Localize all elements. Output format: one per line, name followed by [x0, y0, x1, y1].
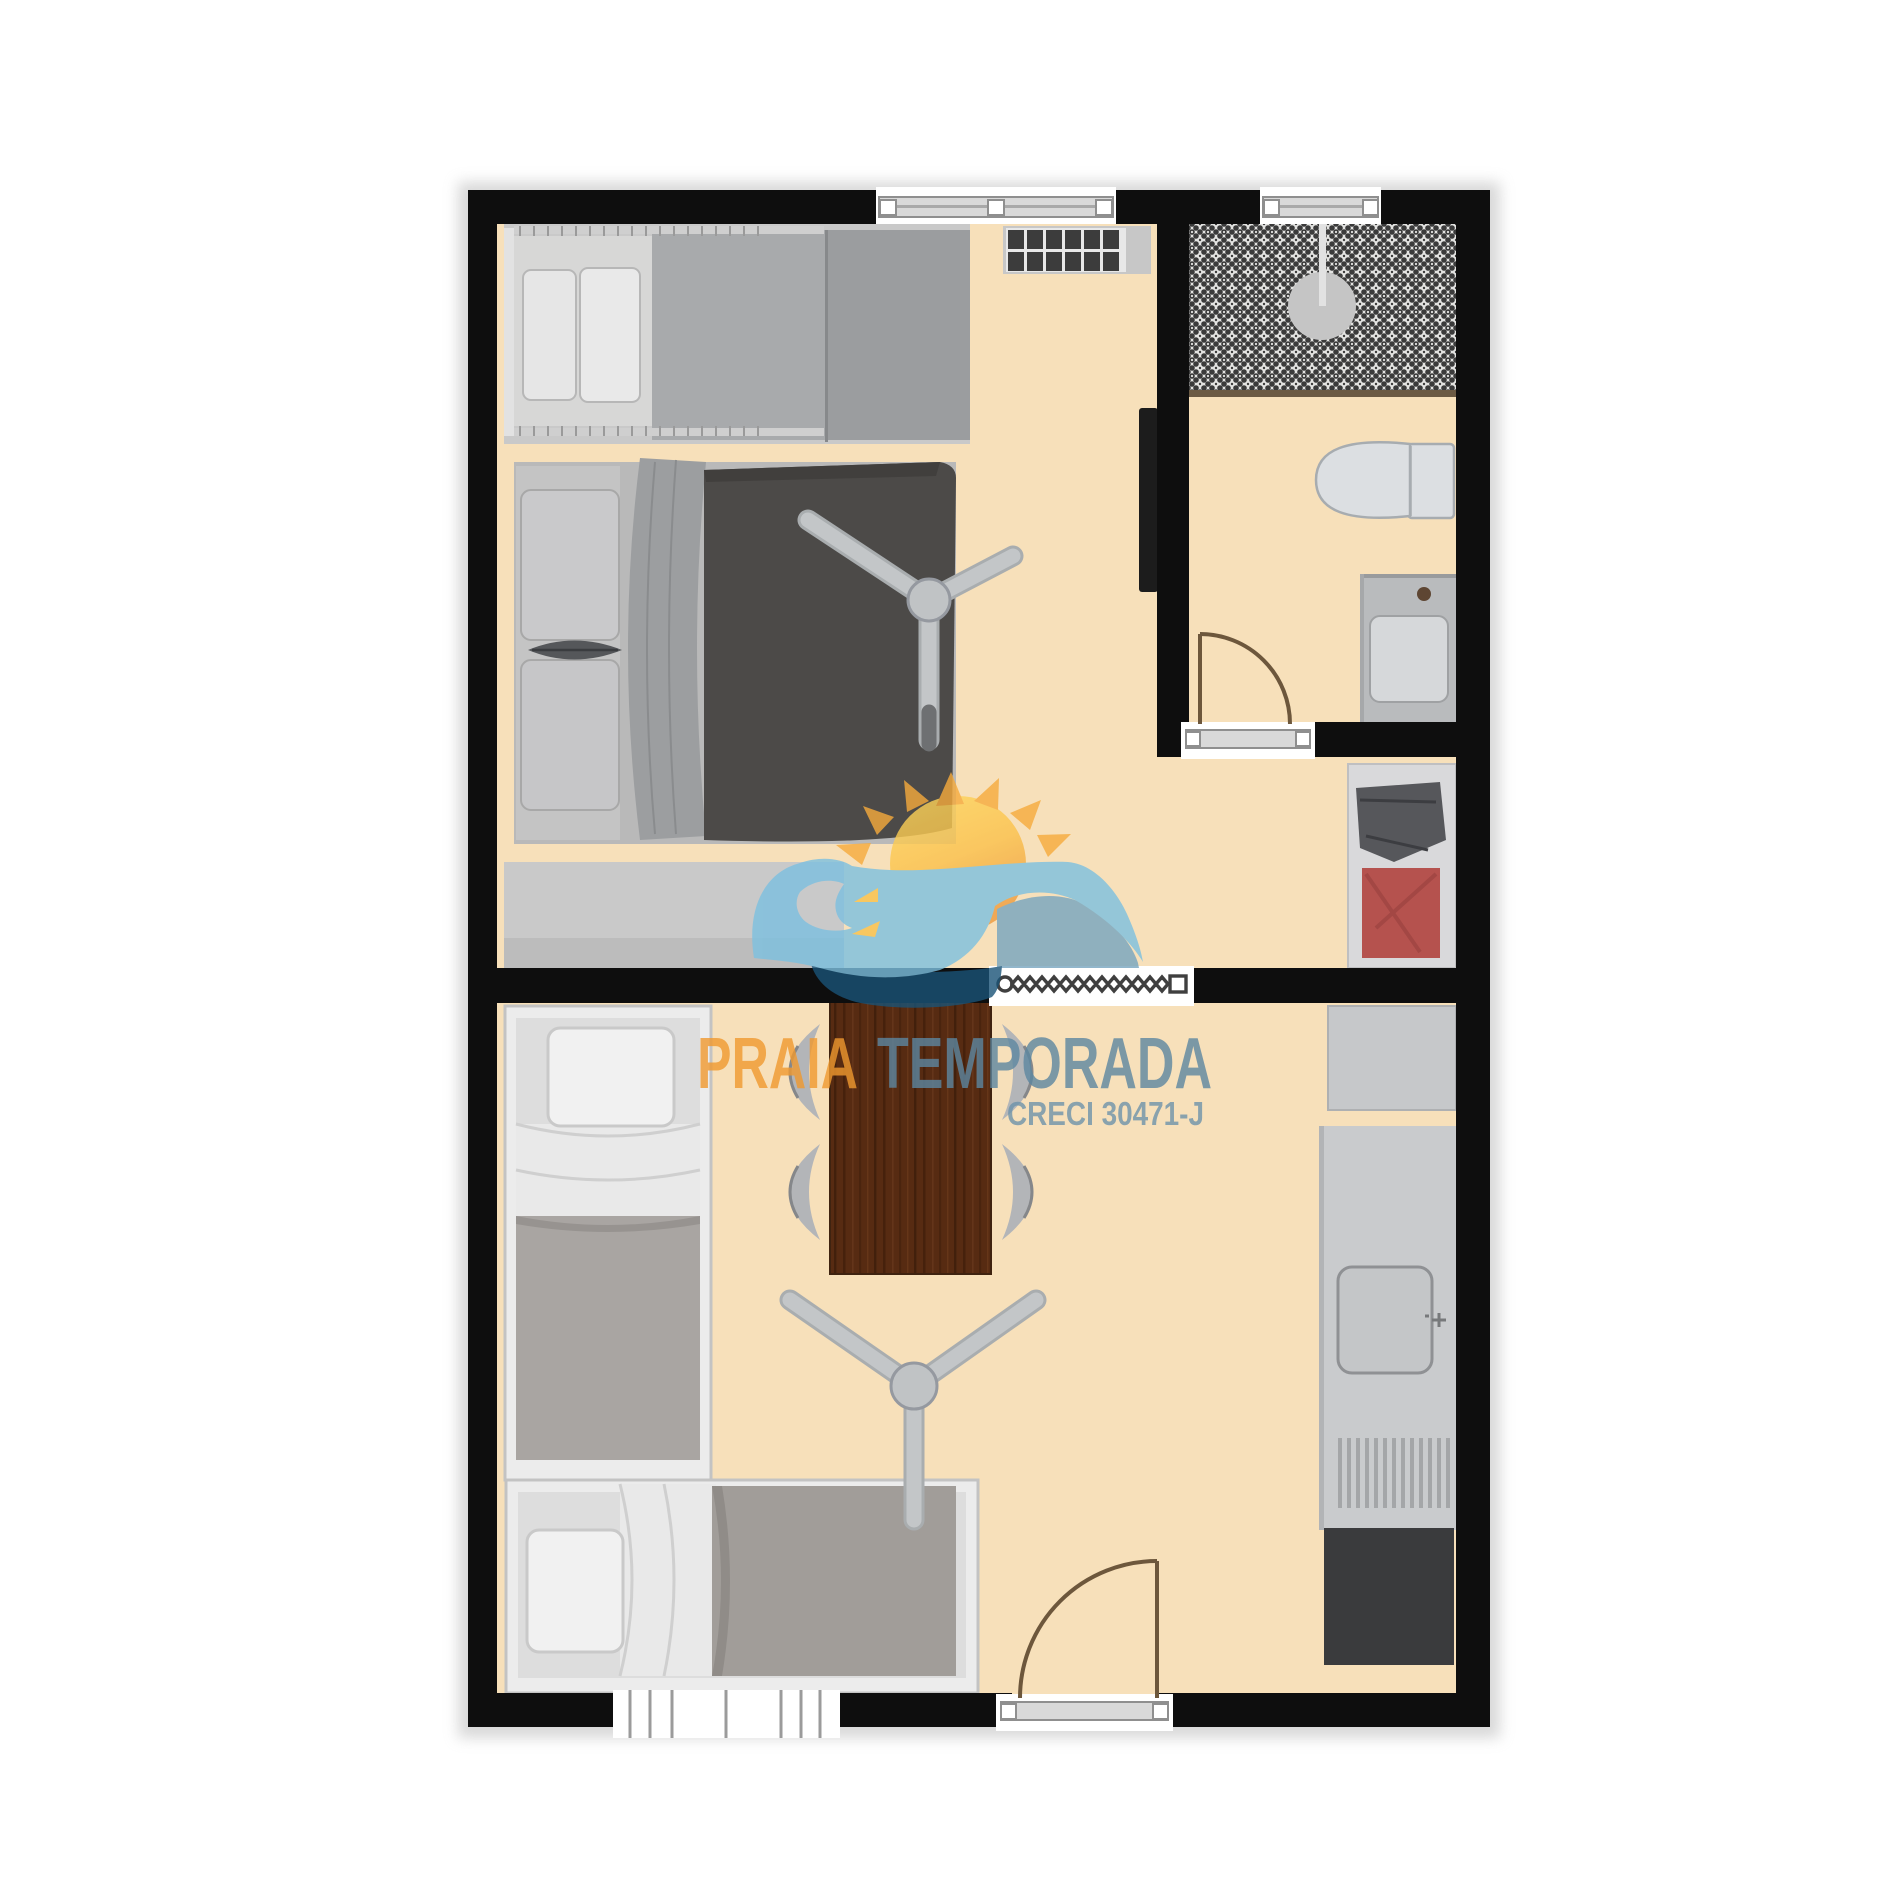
svg-text:TEMPORADA: TEMPORADA	[877, 1024, 1212, 1104]
svg-text:CRECI 30471-J: CRECI 30471-J	[1007, 1095, 1204, 1132]
svg-text:PRAIA: PRAIA	[697, 1024, 858, 1104]
